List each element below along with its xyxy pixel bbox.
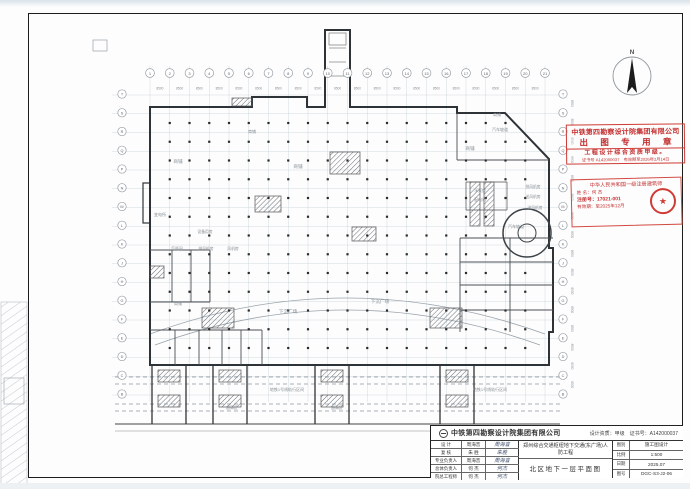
signature-rows: 设 计周海音周海音复 核朱 胜朱胜专业负责人周海音周海音总体负责人何 杰何杰院总… (431, 441, 519, 478)
cell-sig: 周海音 (486, 441, 519, 448)
info-label: 图别 (613, 441, 630, 450)
cell-name: 何 杰 (462, 473, 486, 480)
project-name: 郑州综合交通枢纽地下交通(东广场)人防工程 (519, 441, 612, 459)
cell-role: 设 计 (431, 441, 462, 448)
company-name: 中铁第四勘察设计院集团有限公司 (451, 428, 561, 438)
cell-name: 周海音 (462, 457, 486, 464)
info-value: 施工图设计 (630, 441, 683, 450)
title-block-center: 郑州综合交通枢纽地下交通(东广场)人防工程 北区地下一层平面图 (519, 441, 613, 478)
title-block-header: 中铁第四勘察设计院集团有限公司 设计资质：甲级 证书号：A142000037 (431, 426, 683, 441)
architect-stamp-rows: 姓 名：何 杰 注册号：17021-001 有效期：至2025年12月 (572, 187, 650, 210)
signature-row: 复 核朱 胜朱胜 (431, 449, 519, 457)
drawing-info-row: 比例1:500 (613, 451, 683, 461)
cell-role: 专业负责人 (431, 457, 462, 464)
cell-name: 周海音 (462, 441, 486, 448)
sheet-border-frame (28, 13, 683, 478)
registered-architect-stamp: 中华人民共和国一级注册建筑师 姓 名：何 杰 注册号：17021-001 有效期… (570, 177, 682, 228)
design-qualification: 设计资质：甲级 证书号：A142000037 (590, 430, 678, 437)
drawing-title: 北区地下一层平面图 (519, 459, 612, 478)
architect-stamp-body: 姓 名：何 杰 注册号：17021-001 有效期：至2025年12月 ★ (572, 187, 682, 217)
architect-valid-row: 有效期：至2025年12月 (577, 202, 650, 211)
stamp-release-title: 出 图 专 用 章 (567, 136, 684, 147)
architect-seal-icon: ★ (650, 188, 677, 215)
left-strip-hatch (1, 302, 27, 488)
cell-role: 复 核 (431, 449, 462, 456)
info-label: 图号 (613, 470, 630, 479)
drawing-sheet: 1850028500385004850058500685007850088500… (0, 0, 690, 489)
title-block: 中铁第四勘察设计院集团有限公司 设计资质：甲级 证书号：A142000037 设… (430, 425, 683, 478)
drawing-info-rows: 图别施工图设计比例1:500日期2025.07图号DGC-S3-J2-06 (613, 441, 683, 478)
info-label: 比例 (613, 451, 630, 460)
signature-row: 专业负责人周海音周海音 (431, 457, 519, 465)
drawing-info-row: 日期2025.07 (613, 460, 683, 470)
drawing-info-row: 图别施工图设计 (613, 441, 683, 451)
cell-role: 总体负责人 (431, 465, 462, 472)
cell-role: 院总工程师 (431, 473, 462, 480)
page-bottom-edge (0, 483, 690, 489)
cell-sig: 周海音 (486, 457, 519, 464)
signature-row: 设 计周海音周海音 (431, 441, 519, 449)
institute-release-stamp: 中铁第四勘察设计院集团有限公司 出 图 专 用 章 工程设计综合资质甲级。 证书… (566, 123, 685, 164)
signature-row: 院总工程师何 杰何杰 (431, 473, 519, 480)
stamp-cert-line: 证书号 A142000037 有效期至2026年2月14日 (567, 156, 684, 162)
stamp-qualification-box: 工程设计综合资质甲级。 证书号 A142000037 有效期至2026年2月14… (567, 147, 684, 162)
info-value: 2025.07 (630, 460, 683, 469)
info-value: DGC-S3-J2-06 (630, 470, 683, 479)
signature-row: 总体负责人何 杰何杰 (431, 465, 519, 473)
cell-sig: 何杰 (486, 465, 519, 472)
cell-sig: 朱胜 (486, 449, 519, 456)
cell-name: 何 杰 (462, 465, 486, 472)
cell-name: 朱 胜 (462, 449, 486, 456)
company-logo-icon (439, 429, 448, 438)
info-value: 1:500 (630, 451, 683, 460)
info-label: 日期 (613, 460, 630, 469)
title-block-grid: 设 计周海音周海音复 核朱 胜朱胜专业负责人周海音周海音总体负责人何 杰何杰院总… (431, 441, 683, 478)
cell-sig: 何杰 (486, 473, 519, 480)
drawing-info-row: 图号DGC-S3-J2-06 (613, 470, 683, 479)
